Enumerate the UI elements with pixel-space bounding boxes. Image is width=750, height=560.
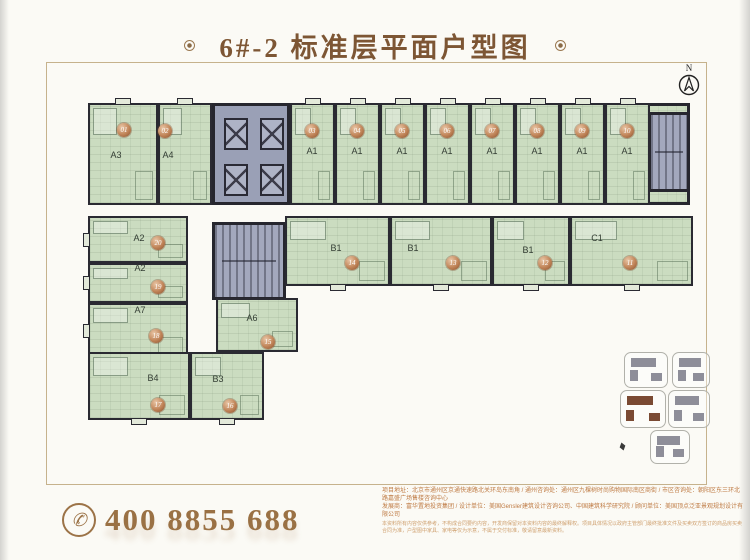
unit-B4-17 bbox=[88, 352, 190, 420]
unit-label: A1 bbox=[486, 146, 497, 156]
unit-number-badge: 12 bbox=[538, 256, 552, 270]
unit-A6-15 bbox=[216, 298, 298, 352]
key-plan-block bbox=[650, 430, 690, 464]
balcony-notch bbox=[177, 98, 193, 105]
unit-number-badge: 16 bbox=[223, 399, 237, 413]
unit-number-badge: 18 bbox=[149, 329, 163, 343]
unit-label: A7 bbox=[134, 305, 145, 315]
unit-label: A2 bbox=[133, 233, 144, 243]
hotline: ✆ 400 8855 688 bbox=[62, 502, 300, 538]
unit-number-badge: 15 bbox=[261, 335, 275, 349]
key-plan-building-shape bbox=[693, 413, 704, 421]
unit-label: A1 bbox=[531, 146, 542, 156]
north-arrow-icon bbox=[677, 73, 701, 97]
unit-label: B4 bbox=[147, 373, 158, 383]
title-ornament-right-icon bbox=[555, 40, 566, 51]
unit-label: A2 bbox=[134, 263, 145, 273]
key-plan-building-shape bbox=[627, 396, 653, 405]
key-plan-building-shape bbox=[651, 373, 662, 381]
balcony-notch bbox=[305, 98, 321, 105]
unit-C1-11 bbox=[570, 216, 693, 286]
unit-number-badge: 04 bbox=[350, 124, 364, 138]
balcony-notch bbox=[433, 284, 449, 291]
balcony-notch bbox=[575, 98, 591, 105]
unit-label: A6 bbox=[246, 313, 257, 323]
unit-label: C1 bbox=[591, 233, 603, 243]
title-ornament-left-icon bbox=[184, 40, 195, 51]
elevator-shaft-icon bbox=[224, 164, 248, 196]
key-plan-block bbox=[672, 352, 710, 388]
project-info-line1: 项目地址：北京市通州区京通快速路北关环岛东南角 / 通州咨询处：通州区九棵树时尚… bbox=[382, 487, 745, 503]
key-plan-block-highlighted bbox=[620, 390, 666, 428]
unit-B1-13 bbox=[390, 216, 492, 286]
unit-number-badge: 19 bbox=[151, 280, 165, 294]
key-plan-building-shape bbox=[657, 436, 680, 445]
project-info-line2: 发展商：富华置地投资集团 / 设计单位：美国Gensler建筑设计咨询公司、中国… bbox=[382, 503, 745, 519]
disclaimer-text: 本资料所有内容仅供参考，不构成合同要约内容，开发商保留对本资料内容的最终解释权。… bbox=[382, 521, 745, 534]
unit-label: A1 bbox=[576, 146, 587, 156]
balcony-notch bbox=[530, 98, 546, 105]
key-plan-building-shape bbox=[678, 370, 686, 381]
key-plan-building-shape bbox=[679, 358, 701, 367]
key-plan-building-shape bbox=[630, 370, 638, 381]
north-label: N bbox=[676, 64, 702, 73]
key-plan-building-shape bbox=[673, 449, 684, 457]
key-plan-building-shape bbox=[674, 410, 682, 421]
project-info: 项目地址：北京市通州区京通快速路北关环岛东南角 / 通州咨询处：通州区九棵树时尚… bbox=[382, 487, 745, 534]
unit-number-badge: 14 bbox=[345, 256, 359, 270]
unit-number-badge: 09 bbox=[575, 124, 589, 138]
unit-label: A3 bbox=[110, 150, 121, 160]
unit-A3-01 bbox=[88, 103, 158, 205]
unit-label: B1 bbox=[407, 243, 418, 253]
stair-core-top-right bbox=[648, 112, 690, 192]
unit-number-badge: 06 bbox=[440, 124, 454, 138]
balcony-notch bbox=[131, 418, 147, 425]
balcony-notch bbox=[83, 233, 90, 247]
balcony-notch bbox=[485, 98, 501, 105]
key-plan-block bbox=[624, 352, 668, 388]
unit-number-badge: 01 bbox=[117, 123, 131, 137]
balcony-notch bbox=[83, 324, 90, 338]
elevator-shaft-icon bbox=[260, 164, 284, 196]
unit-number-badge: 08 bbox=[530, 124, 544, 138]
page-title: 6#-2 标准层平面户型图 bbox=[219, 26, 530, 65]
unit-number-badge: 05 bbox=[395, 124, 409, 138]
balcony-notch bbox=[523, 284, 539, 291]
balcony-notch bbox=[330, 284, 346, 291]
page-title-row: 6#-2 标准层平面户型图 bbox=[0, 26, 750, 65]
unit-label: A1 bbox=[621, 146, 632, 156]
balcony-notch bbox=[219, 418, 235, 425]
unit-label: B1 bbox=[522, 245, 533, 255]
stair-core-middle bbox=[212, 222, 286, 300]
balcony-notch bbox=[624, 284, 640, 291]
elevator-shaft-icon bbox=[224, 118, 248, 150]
balcony-notch bbox=[83, 276, 90, 290]
unit-number-badge: 07 bbox=[485, 124, 499, 138]
phone-icon: ✆ bbox=[62, 503, 96, 537]
elevator-core bbox=[212, 103, 290, 205]
phone-number: 400 8855 688 bbox=[105, 502, 300, 538]
unit-label: A1 bbox=[351, 146, 362, 156]
balcony-notch bbox=[440, 98, 456, 105]
unit-number-badge: 03 bbox=[305, 124, 319, 138]
elevator-shaft-icon bbox=[260, 118, 284, 150]
balcony-notch bbox=[395, 98, 411, 105]
key-plan-building-shape bbox=[631, 358, 656, 367]
scan-shadow-right bbox=[739, 0, 750, 560]
unit-label: B1 bbox=[330, 243, 341, 253]
key-plan-building-shape bbox=[693, 373, 704, 381]
scan-shadow-left bbox=[0, 0, 9, 560]
balcony-notch bbox=[620, 98, 636, 105]
unit-label: B3 bbox=[212, 374, 223, 384]
poster: 6#-2 标准层平面户型图 N A301A402A103A104A105A106… bbox=[0, 0, 750, 560]
unit-label: A1 bbox=[306, 146, 317, 156]
unit-number-badge: 13 bbox=[446, 256, 460, 270]
unit-number-badge: 20 bbox=[151, 236, 165, 250]
key-plan-building-shape bbox=[649, 413, 660, 421]
unit-label: A1 bbox=[441, 146, 452, 156]
unit-number-badge: 11 bbox=[623, 256, 637, 270]
key-plan-building-shape bbox=[656, 446, 664, 457]
unit-number-badge: 10 bbox=[620, 124, 634, 138]
unit-label: A1 bbox=[396, 146, 407, 156]
unit-number-badge: 17 bbox=[151, 398, 165, 412]
unit-label: A4 bbox=[162, 150, 173, 160]
key-plan-building-shape bbox=[675, 396, 699, 405]
unit-number-badge: 02 bbox=[158, 124, 172, 138]
balcony-notch bbox=[350, 98, 366, 105]
key-plan-block bbox=[668, 390, 710, 428]
balcony-notch bbox=[115, 98, 131, 105]
north-compass: N bbox=[676, 64, 702, 102]
key-plan-building-shape bbox=[626, 410, 634, 421]
